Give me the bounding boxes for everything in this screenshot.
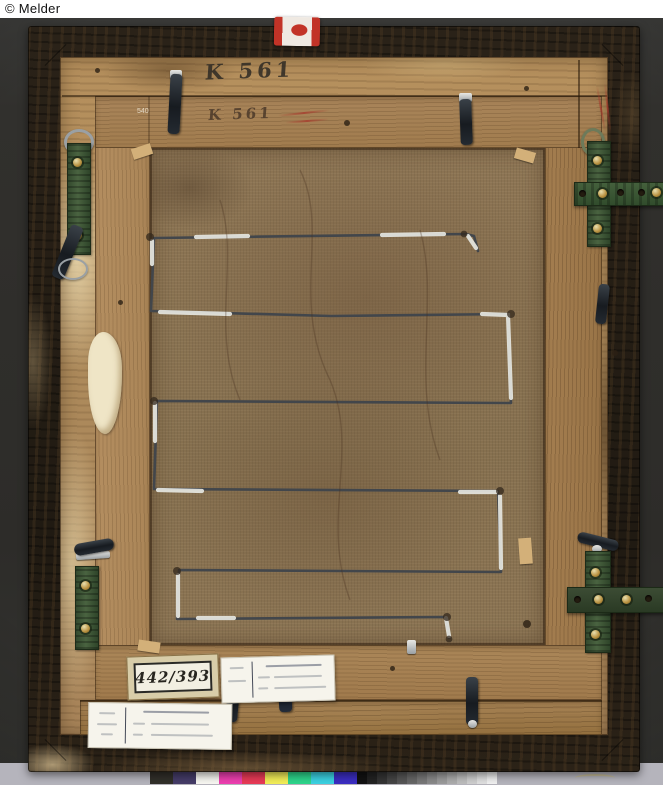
strap-hole [579,190,586,197]
label-text-line [97,723,117,725]
wire-loop [58,258,88,280]
brass-screw [593,224,602,233]
photo-artwork-verso: { "credit_line": "© Melder", "photo": { … [0,0,663,785]
label-text-line [230,667,244,669]
nail-head [523,620,531,628]
printed-museum-label [88,702,233,750]
label-text-line [151,734,213,736]
nail-head [524,86,529,91]
brass-screw [652,188,661,197]
label-text-line [151,723,209,725]
spring-clip [459,99,473,145]
inventory-label-inner: 442/393 [134,661,213,694]
label-divider [252,662,254,698]
board-seam [80,700,602,702]
brass-screw [593,156,602,165]
strap-hole [617,189,624,196]
nail-head [118,300,123,305]
hanger-plate-left-lower [75,566,99,650]
stretcher-key [518,538,533,565]
small-stamp: 540 [137,108,149,115]
inscription-frame-number: K 561 [204,56,295,84]
brass-screw [594,595,603,604]
inventory-number: 442/393 [134,667,212,688]
brass-screw [81,624,90,633]
label-text-line [274,686,326,689]
brass-screw [81,581,90,590]
steel-screw [468,720,477,728]
nail-head [390,666,395,671]
inscription-stretcher-number: K 561 [207,104,273,124]
nail-head [612,350,618,356]
strap-hole [645,595,652,602]
wire-tape-end [407,640,416,654]
nail-head [95,68,100,73]
credit-watermark: © Melder [5,0,305,18]
printed-museum-label [220,655,335,704]
inventory-label: 442/393 [126,653,219,700]
label-text-line [99,712,115,714]
label-divider [125,708,127,744]
strap-hole [574,596,581,603]
label-text-line [258,687,268,689]
label-text-line [228,680,246,682]
board-seam [62,95,607,97]
label-text-line [274,675,322,678]
brass-screw [622,595,631,604]
brass-screw [598,189,607,198]
thin-cable [575,774,615,782]
brass-screw [591,630,600,639]
label-text-line [101,733,113,735]
brass-screw [73,158,82,167]
spring-clip [466,677,478,725]
label-text-line [258,676,270,678]
label-text-line [133,723,145,725]
brass-screw [591,568,600,577]
board-seam [148,96,150,148]
label-text-line [133,734,143,736]
label-text-line [143,711,209,714]
nail-head [344,120,350,126]
canvas-back [150,148,545,645]
board-seam [578,60,580,148]
strap-hole [638,189,645,196]
red-white-sticker [274,17,320,47]
label-text-line [266,664,322,667]
